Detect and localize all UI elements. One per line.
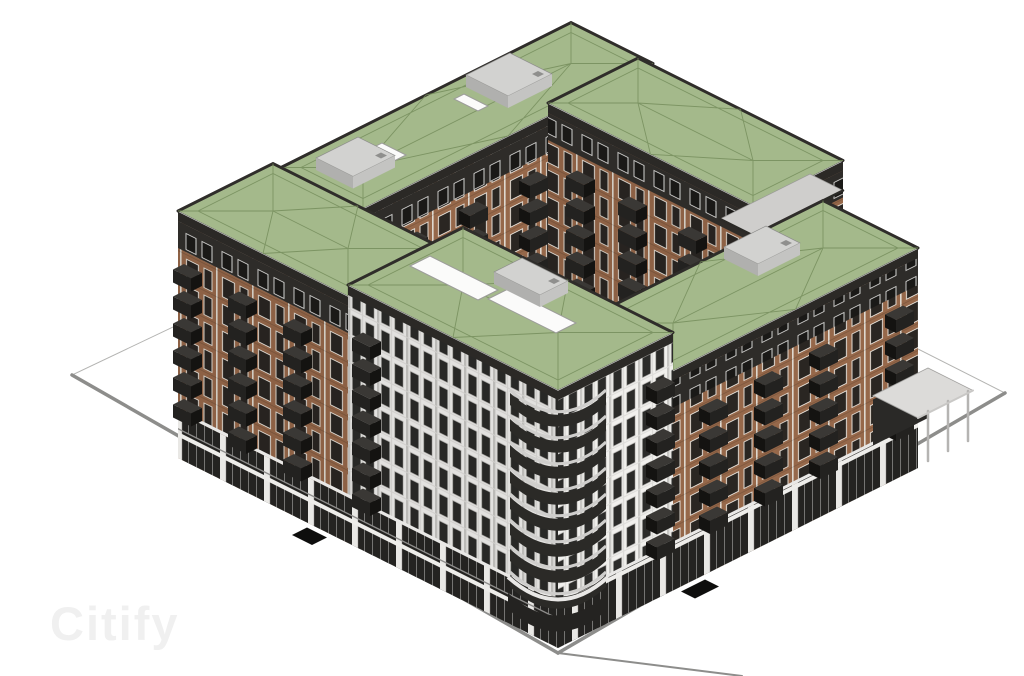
entrance-mat xyxy=(292,528,327,546)
rendering-canvas: Citify xyxy=(0,0,1024,676)
watermark: Citify xyxy=(50,596,180,651)
architectural-3d-rendering xyxy=(0,0,1024,676)
street-curb-extension xyxy=(558,653,742,676)
